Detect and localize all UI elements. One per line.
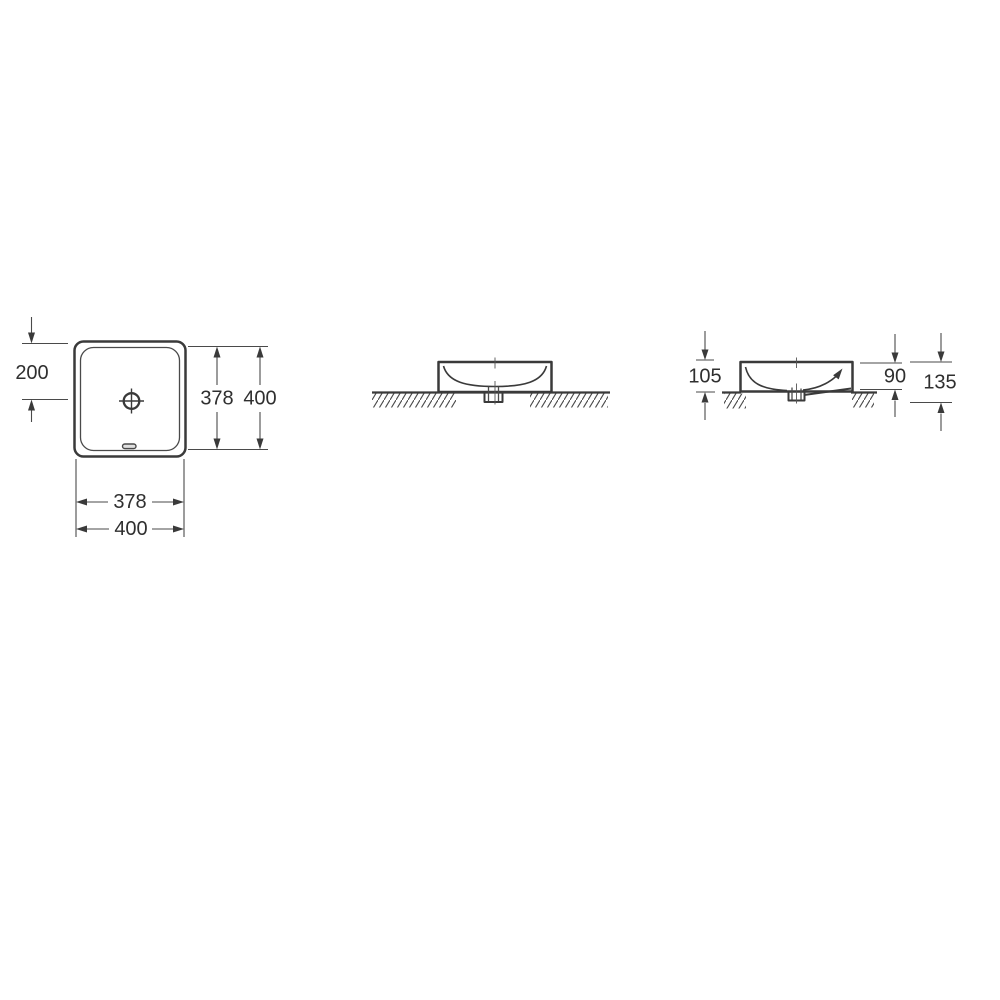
counter-hatch-side-right <box>852 394 874 408</box>
washbasin-technical-drawing: 200 378 400 378 <box>0 0 1000 1000</box>
basin-curve-side-left <box>746 367 788 391</box>
counter-hatch-left <box>372 394 456 408</box>
basin-inner-rim <box>81 348 180 451</box>
counter-hatch-right <box>530 394 608 408</box>
drawing-canvas: 200 378 400 378 <box>0 0 1000 1000</box>
dim-label-105: 105 <box>688 366 721 388</box>
dim-200: 200 <box>15 317 68 422</box>
dim-bottom-horizontal: 378 400 <box>76 459 184 540</box>
counter-hatch-side-left <box>724 394 746 409</box>
dim-135: 135 <box>910 333 957 431</box>
dim-label-400-horizontal: 400 <box>114 518 147 540</box>
top-view: 200 378 400 378 <box>15 317 276 540</box>
front-view <box>372 358 610 408</box>
dim-right-vertical: 378 400 <box>188 347 277 450</box>
basin-outer-rim <box>75 342 186 457</box>
drain-front <box>485 387 503 403</box>
drain-symbol-icon <box>119 389 144 414</box>
dim-105: 105 <box>688 331 721 420</box>
dim-label-200: 200 <box>15 362 48 384</box>
dim-label-378-vertical: 378 <box>200 388 233 410</box>
overflow-slot <box>123 444 137 449</box>
dim-label-378-horizontal: 378 <box>113 491 146 513</box>
dim-label-135: 135 <box>923 372 956 394</box>
dim-label-90: 90 <box>884 366 906 388</box>
dim-label-400-vertical: 400 <box>243 388 276 410</box>
side-view: 105 90 135 <box>688 331 956 431</box>
